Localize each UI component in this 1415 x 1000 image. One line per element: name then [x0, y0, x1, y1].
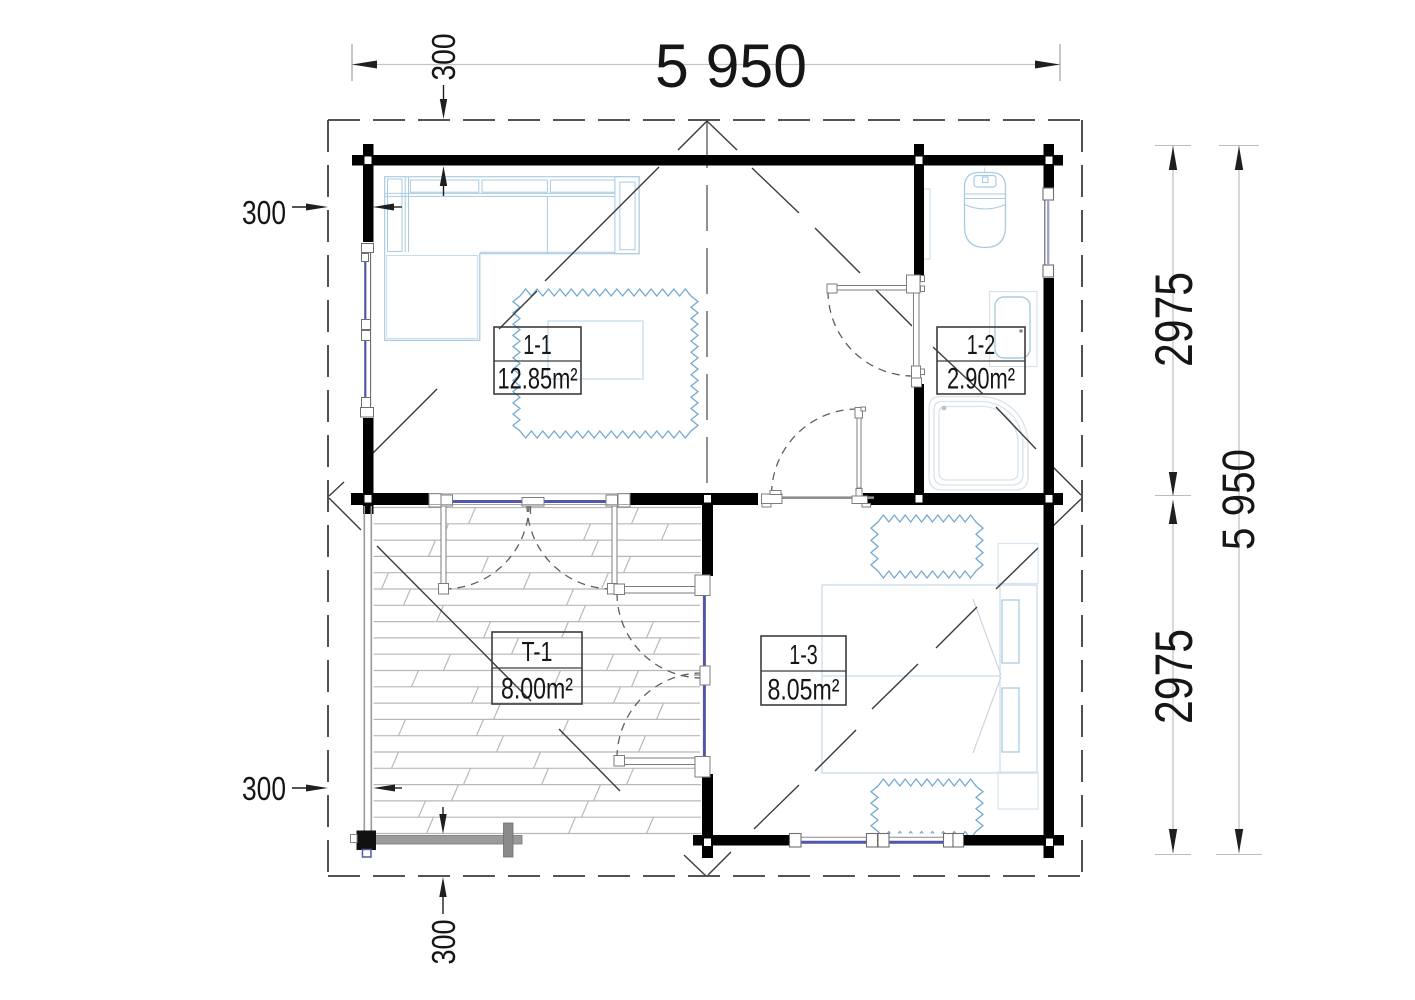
svg-text:12.85m²: 12.85m²	[498, 363, 578, 396]
svg-text:5 950: 5 950	[655, 32, 807, 100]
svg-text:1-2: 1-2	[967, 329, 996, 360]
svg-text:1-1: 1-1	[523, 329, 552, 360]
svg-text:300: 300	[425, 920, 462, 965]
svg-text:8.00m²: 8.00m²	[501, 673, 573, 706]
svg-text:8.05m²: 8.05m²	[768, 674, 840, 707]
svg-text:300: 300	[425, 34, 462, 81]
svg-text:300: 300	[242, 194, 286, 231]
svg-text:2975: 2975	[1145, 272, 1204, 367]
svg-text:300: 300	[242, 770, 286, 807]
svg-text:5 950: 5 950	[1213, 449, 1264, 550]
svg-text:2975: 2975	[1145, 629, 1204, 724]
svg-text:2.90m²: 2.90m²	[947, 363, 1015, 396]
svg-text:T-1: T-1	[522, 636, 553, 667]
svg-text:1-3: 1-3	[789, 639, 818, 670]
